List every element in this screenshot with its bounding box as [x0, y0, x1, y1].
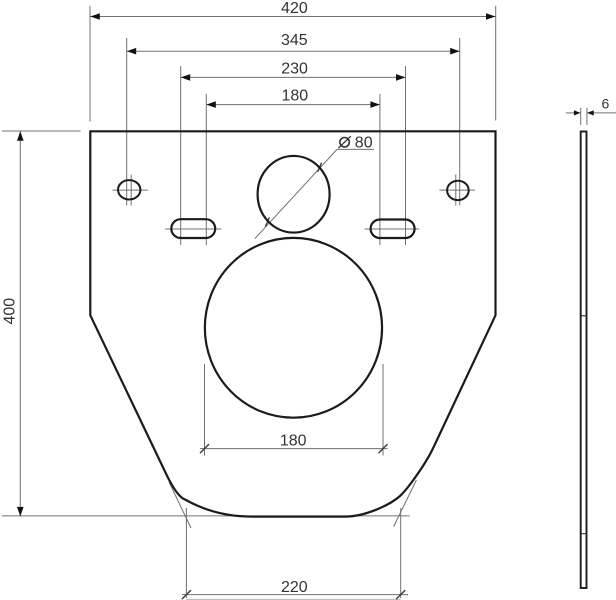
svg-text:180: 180	[281, 88, 308, 105]
svg-text:80: 80	[355, 135, 373, 152]
svg-text:420: 420	[281, 0, 308, 17]
svg-text:230: 230	[281, 60, 308, 77]
svg-text:400: 400	[1, 298, 18, 325]
svg-text:345: 345	[281, 32, 308, 49]
svg-text:180: 180	[280, 433, 307, 450]
svg-text:6: 6	[602, 96, 610, 112]
svg-text:220: 220	[281, 579, 308, 596]
